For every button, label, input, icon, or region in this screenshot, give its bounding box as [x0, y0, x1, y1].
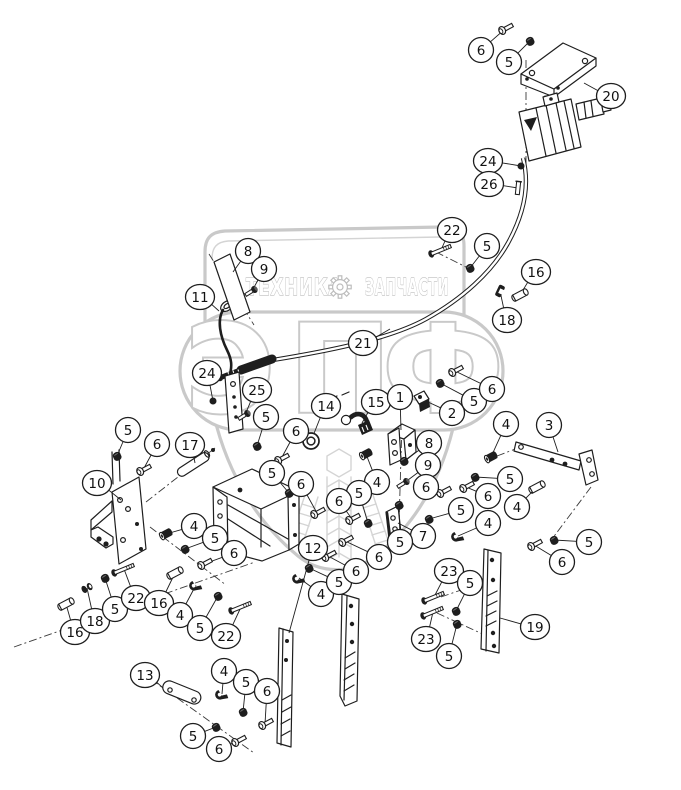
part-glyph-nut	[238, 707, 249, 718]
part-glyph-grommet	[210, 398, 217, 405]
callout-number: 4	[176, 608, 185, 624]
callout-6[interactable]: 6	[327, 489, 352, 514]
callout-number: 9	[424, 458, 433, 474]
callout-number: 5	[466, 576, 475, 592]
callout-14[interactable]: 14	[312, 394, 341, 419]
callout-13[interactable]: 13	[131, 663, 160, 688]
part-glyph-nut	[525, 36, 536, 47]
callout-6[interactable]: 6	[367, 545, 392, 570]
callout-23[interactable]: 23	[412, 627, 441, 652]
callout-5[interactable]: 5	[577, 530, 602, 555]
callout-7[interactable]: 7	[411, 524, 436, 549]
callout-9[interactable]: 9	[416, 453, 441, 478]
callout-number: 1	[396, 390, 405, 406]
callout-number: 5	[483, 239, 492, 255]
callout-number: 15	[367, 395, 384, 411]
callout-6[interactable]: 6	[476, 484, 501, 509]
callout-6[interactable]: 6	[145, 432, 170, 457]
callout-number: 8	[425, 436, 434, 452]
callout-number: 4	[190, 519, 199, 535]
callout-number: 6	[352, 564, 361, 580]
callout-11[interactable]: 11	[186, 285, 215, 310]
part-glyph-cclamp	[495, 284, 506, 298]
callout-number: 6	[292, 424, 301, 440]
callout-number: 6	[422, 480, 431, 496]
callout-5[interactable]: 5	[497, 50, 522, 75]
leader-line	[400, 410, 401, 431]
part-bracket-10	[91, 450, 146, 564]
leader-line	[124, 569, 131, 586]
callout-5[interactable]: 5	[449, 498, 474, 523]
callout-1[interactable]: 1	[388, 385, 413, 410]
callout-18[interactable]: 18	[493, 308, 522, 333]
callout-number: 5	[457, 503, 466, 519]
callout-4[interactable]: 4	[505, 495, 530, 520]
callout-19[interactable]: 19	[521, 615, 550, 640]
callout-number: 2	[448, 406, 457, 422]
callout-number: 4	[502, 417, 511, 433]
callout-5[interactable]: 5	[388, 530, 413, 555]
callout-24[interactable]: 24	[193, 361, 222, 386]
callout-4[interactable]: 4	[494, 412, 519, 437]
callout-4[interactable]: 4	[476, 511, 501, 536]
callout-6[interactable]: 6	[469, 38, 494, 63]
callout-16[interactable]: 16	[522, 260, 551, 285]
callout-4[interactable]: 4	[212, 659, 237, 684]
part-glyph-bolt	[257, 716, 274, 730]
leader-line	[534, 545, 551, 556]
part-plate-13	[161, 679, 203, 706]
callout-number: 26	[480, 177, 497, 193]
part-glyph-nut	[451, 606, 462, 617]
callout-6[interactable]: 6	[222, 541, 247, 566]
callout-5[interactable]: 5	[254, 405, 279, 430]
callout-number: 11	[191, 290, 208, 306]
callout-5[interactable]: 5	[475, 234, 500, 259]
callout-5[interactable]: 5	[437, 644, 462, 669]
callout-17[interactable]: 17	[176, 433, 205, 458]
callout-number: 5	[211, 531, 220, 547]
part-glyph-nut	[100, 573, 111, 584]
part-glyph-nut	[252, 441, 263, 452]
part-glyph-nut	[180, 544, 191, 555]
callout-number: 6	[263, 684, 272, 700]
part-glyph-nut	[213, 591, 224, 602]
part-glyph-nut	[470, 472, 481, 483]
callout-number: 20	[602, 89, 619, 105]
callout-number: 5	[506, 472, 515, 488]
callout-15[interactable]: 15	[362, 390, 391, 415]
part-rail-center	[340, 594, 359, 706]
parts-diagram-svg: ТЕХНИКА ЗАПЧАСТИ Э П Ф	[0, 0, 681, 790]
leader-line	[345, 541, 368, 552]
part-glyph-clamp	[291, 572, 306, 586]
callout-number: 5	[196, 621, 205, 637]
part-glyph-longbolt	[427, 243, 452, 259]
leader-line	[222, 684, 223, 695]
eppf-letter-2: П	[289, 299, 391, 441]
callout-number: 16	[150, 596, 167, 612]
callout-6[interactable]: 6	[344, 559, 369, 584]
callout-number: 6	[230, 546, 239, 562]
callout-5[interactable]: 5	[188, 616, 213, 641]
part-rail-19	[481, 549, 501, 653]
callout-number: 6	[488, 382, 497, 398]
callout-number: 6	[335, 494, 344, 510]
callout-number: 24	[479, 154, 496, 170]
callout-number: 5	[268, 466, 277, 482]
callout-21[interactable]: 21	[349, 331, 378, 356]
callout-number: 6	[484, 489, 493, 505]
callout-number: 5	[445, 649, 454, 665]
callout-26[interactable]: 26	[475, 172, 504, 197]
part-glyph-bushing	[57, 597, 75, 611]
leader-line	[157, 682, 163, 688]
callout-5[interactable]: 5	[181, 724, 206, 749]
callout-number: 5	[335, 575, 344, 591]
part-glyph-longbolt	[227, 600, 252, 616]
callout-number: 18	[86, 614, 103, 630]
callout-2[interactable]: 2	[440, 401, 465, 426]
leader-line	[553, 437, 558, 452]
callout-number: 22	[217, 629, 234, 645]
callout-number: 5	[505, 55, 514, 71]
callout-22[interactable]: 22	[212, 624, 241, 649]
callout-20[interactable]: 20	[597, 84, 626, 109]
callout-number: 24	[198, 366, 215, 382]
part-glyph-longbolt	[110, 562, 135, 578]
callout-number: 5	[585, 535, 594, 551]
callout-number: 6	[215, 742, 224, 758]
callout-number: 6	[375, 550, 384, 566]
callout-6[interactable]: 6	[289, 472, 314, 497]
callout-number: 5	[124, 423, 133, 439]
part-glyph-bolt	[337, 533, 354, 547]
callout-6[interactable]: 6	[414, 475, 439, 500]
callout-number: 6	[153, 437, 162, 453]
callout-number: 19	[526, 620, 543, 636]
callout-number: 5	[355, 486, 364, 502]
callout-5[interactable]: 5	[458, 571, 483, 596]
part-glyph-bushing	[166, 566, 184, 580]
callout-22[interactable]: 22	[438, 218, 467, 243]
callout-number: 21	[354, 336, 371, 352]
leader-line	[500, 618, 521, 624]
callout-number: 4	[317, 587, 326, 603]
part-glyph-longbolt	[420, 590, 445, 606]
callout-number: 6	[558, 555, 567, 571]
callout-10[interactable]: 10	[83, 471, 112, 496]
callout-5[interactable]: 5	[116, 418, 141, 443]
callout-25[interactable]: 25	[243, 378, 272, 403]
callout-number: 22	[127, 591, 144, 607]
leader-line	[584, 83, 598, 91]
part-glyph-screw	[396, 477, 411, 490]
callout-number: 23	[440, 564, 457, 580]
callout-3[interactable]: 3	[537, 413, 562, 438]
callout-6[interactable]: 6	[255, 679, 280, 704]
callout-12[interactable]: 12	[299, 536, 328, 561]
callout-5[interactable]: 5	[260, 461, 285, 486]
callout-number: 8	[244, 244, 253, 260]
callout-number: 10	[88, 476, 105, 492]
callout-number: 5	[111, 602, 120, 618]
callout-number: 13	[136, 668, 153, 684]
part-glyph-nut	[465, 263, 476, 274]
gear-icon	[329, 276, 351, 298]
callout-number: 23	[417, 632, 434, 648]
callout-number: 6	[297, 477, 306, 493]
part-glyph-bolt	[344, 511, 361, 525]
watermark-brand-right: ЗАПЧАСТИ	[365, 275, 449, 301]
callout-number: 25	[248, 383, 265, 399]
leader-line	[458, 528, 477, 536]
callout-number: 5	[242, 675, 251, 691]
part-glyph-nut	[549, 535, 560, 546]
callout-number: 16	[527, 265, 544, 281]
part-glyph-bolt	[135, 462, 152, 476]
callout-number: 5	[470, 394, 479, 410]
part-glyph-clamp	[214, 688, 229, 702]
part-glyph-bolt	[230, 733, 247, 747]
callout-number: 3	[545, 418, 554, 434]
callout-number: 14	[317, 399, 334, 415]
part-glyph-bushing2	[358, 447, 373, 460]
part-glyph-bushing	[528, 480, 546, 494]
part-bracket-3	[514, 442, 598, 485]
part-glyph-grommet	[518, 163, 525, 170]
part-glyph-clamp	[450, 530, 465, 544]
callout-number: 18	[498, 313, 515, 329]
part-glyph-nut	[363, 518, 374, 529]
callout-number: 4	[484, 516, 493, 532]
callout-number: 22	[443, 223, 460, 239]
callout-6[interactable]: 6	[550, 550, 575, 575]
leader-line	[87, 588, 92, 609]
callout-24[interactable]: 24	[474, 149, 503, 174]
part-glyph-bushing2	[483, 450, 498, 463]
part-glyph-bushing2	[158, 527, 173, 540]
callout-5[interactable]: 5	[498, 467, 523, 492]
part-glyph-nut	[112, 451, 123, 462]
callout-6[interactable]: 6	[480, 377, 505, 402]
callout-9[interactable]: 9	[252, 257, 277, 282]
callout-number: 17	[181, 438, 198, 454]
part-glyph-bushing	[511, 288, 529, 302]
part-glyph-bolt	[497, 21, 514, 35]
callout-number: 12	[304, 541, 321, 557]
part-solenoid	[519, 93, 611, 161]
diagram-page: ТЕХНИКА ЗАПЧАСТИ Э П Ф	[0, 0, 681, 790]
callout-number: 5	[396, 535, 405, 551]
part-glyph-bolt	[458, 479, 475, 493]
callout-number: 5	[189, 729, 198, 745]
callout-number: 9	[260, 262, 269, 278]
callout-number: 4	[513, 500, 522, 516]
callout-8[interactable]: 8	[417, 431, 442, 456]
callout-number: 7	[419, 529, 428, 545]
callout-number: 5	[262, 410, 271, 426]
callout-number: 4	[373, 475, 382, 491]
callout-6[interactable]: 6	[207, 737, 232, 762]
callout-6[interactable]: 6	[284, 419, 309, 444]
callout-number: 16	[66, 625, 83, 641]
callout-number: 4	[220, 664, 229, 680]
callout-number: 6	[477, 43, 486, 59]
